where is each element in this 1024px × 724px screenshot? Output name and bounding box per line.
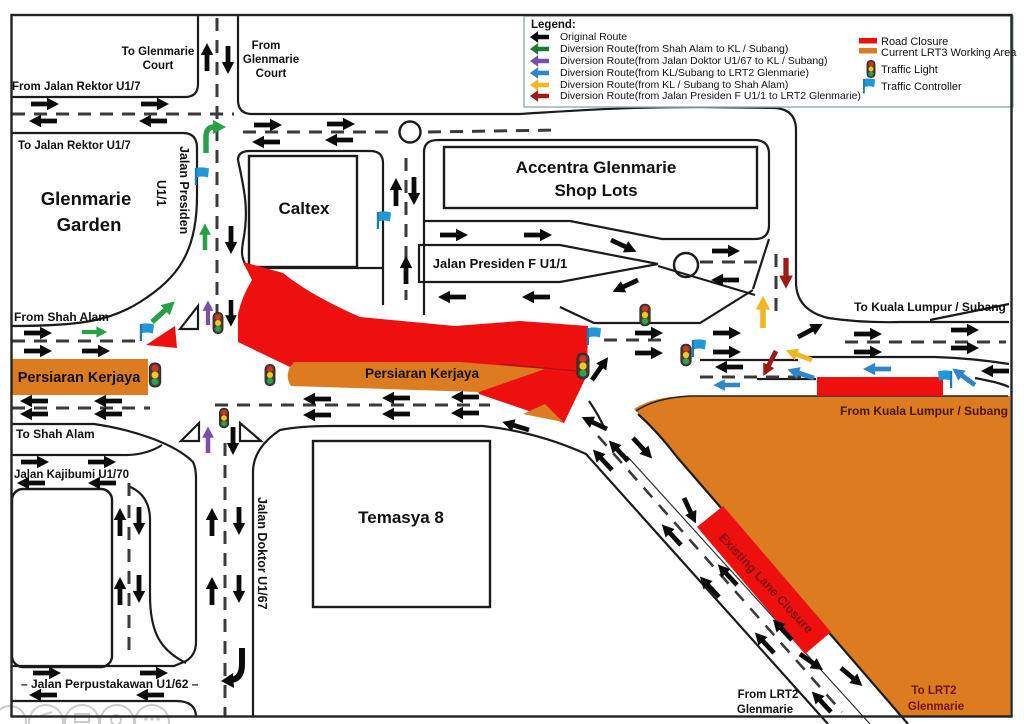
svg-text:Diversion Route(from KL/Subang: Diversion Route(from KL/Subang to LRT2 G… [560, 67, 809, 79]
svg-text:Jalan Kajibumi U1/70: Jalan Kajibumi U1/70 [14, 469, 129, 481]
svg-text:Traffic Controller: Traffic Controller [881, 81, 962, 93]
svg-text:Jalan Presiden: Jalan Presiden [177, 146, 191, 234]
svg-text:To Jalan Rektor U1/7: To Jalan Rektor U1/7 [18, 140, 131, 152]
svg-text:Diversion Route(from Shah Alam: Diversion Route(from Shah Alam to KL / S… [560, 43, 788, 55]
svg-text:Glenmarie: Glenmarie [41, 188, 132, 209]
svg-text:Traffic Light: Traffic Light [881, 64, 938, 76]
svg-text:Temasya 8: Temasya 8 [358, 508, 444, 527]
svg-text:Jalan Presiden F U1/1: Jalan Presiden F U1/1 [433, 256, 567, 271]
svg-text:Garden: Garden [57, 214, 122, 235]
svg-text:Caltex: Caltex [278, 199, 330, 218]
svg-text:Glenmarie: Glenmarie [737, 704, 793, 716]
svg-text:U1/1: U1/1 [154, 180, 168, 206]
svg-text:Glenmarie: Glenmarie [243, 54, 299, 66]
svg-text:From Kuala Lumpur / Subang: From Kuala Lumpur / Subang [840, 404, 1008, 418]
svg-text:From Jalan Rektor U1/7: From Jalan Rektor U1/7 [12, 81, 140, 93]
svg-text:Persiaran Kerjaya: Persiaran Kerjaya [365, 366, 480, 381]
svg-text:Shop Lots: Shop Lots [554, 181, 637, 200]
svg-text:Current LRT3 Working Area: Current LRT3 Working Area [881, 47, 1017, 59]
svg-text:Court: Court [143, 60, 174, 72]
svg-text:– Jalan Perpustakawan U1/62 –: – Jalan Perpustakawan U1/62 – [21, 677, 199, 691]
svg-text:To Shah Alam: To Shah Alam [16, 427, 95, 441]
svg-text:Original Route: Original Route [560, 31, 627, 43]
svg-text:From Shah Alam: From Shah Alam [14, 310, 109, 324]
svg-text:Glenmarie: Glenmarie [908, 701, 964, 713]
svg-text:Diversion Route(from Jalan Pre: Diversion Route(from Jalan Presiden F U1… [560, 90, 861, 102]
svg-text:Jalan Doktor U1/67: Jalan Doktor U1/67 [255, 497, 269, 610]
svg-text:To Glenmarie: To Glenmarie [122, 46, 195, 58]
svg-text:From: From [252, 40, 281, 52]
svg-text:From LRT2: From LRT2 [738, 689, 799, 701]
svg-text:To Kuala Lumpur / Subang: To Kuala Lumpur / Subang [854, 300, 1006, 314]
svg-text:Legend:: Legend: [531, 19, 576, 31]
svg-text:Court: Court [256, 68, 287, 80]
svg-text:Diversion Route(from Jalan Dok: Diversion Route(from Jalan Doktor U1/67 … [560, 55, 828, 67]
svg-text:Persiaran Kerjaya: Persiaran Kerjaya [18, 370, 141, 386]
svg-text:Accentra Glenmarie: Accentra Glenmarie [516, 158, 677, 177]
svg-text:To LRT2: To LRT2 [911, 685, 956, 697]
